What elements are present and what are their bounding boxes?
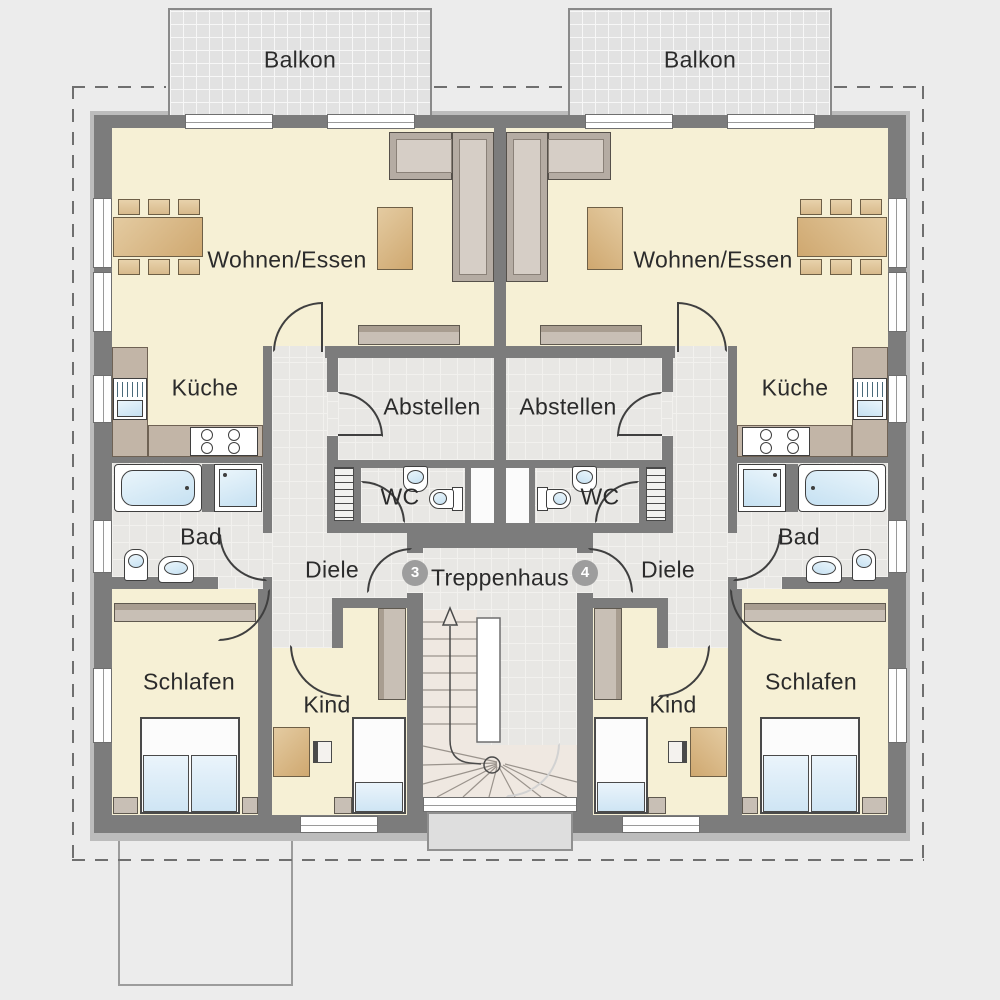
- room-label-bedroom-right: Schlafen: [765, 669, 857, 696]
- room-label-kitchen-left: Küche: [172, 375, 239, 402]
- room-label-child-right: Kind: [649, 692, 696, 719]
- room-label-balcony-right: Balkon: [664, 47, 736, 74]
- room-label-kitchen-right: Küche: [762, 375, 829, 402]
- room-label-hall-left: Diele: [305, 557, 359, 584]
- room-label-living-left: Wohnen/Essen: [207, 247, 366, 274]
- room-label-storage-right: Abstellen: [519, 394, 616, 421]
- room-label-hall-right: Diele: [641, 557, 695, 584]
- labels-layer: Balkon Balkon Wohnen/Essen Wohnen/Essen …: [0, 0, 1000, 1000]
- room-label-bath-left: Bad: [180, 524, 222, 551]
- room-label-living-right: Wohnen/Essen: [633, 247, 792, 274]
- room-label-bedroom-left: Schlafen: [143, 669, 235, 696]
- floor-plan: Balkon Balkon Wohnen/Essen Wohnen/Essen …: [0, 0, 1000, 1000]
- room-label-stairwell: Treppenhaus: [431, 565, 569, 592]
- room-label-wc-right: WC: [581, 484, 620, 511]
- unit-badge-right: 4: [572, 560, 598, 586]
- room-label-wc-left: WC: [381, 484, 420, 511]
- room-label-child-left: Kind: [303, 692, 350, 719]
- room-label-bath-right: Bad: [778, 524, 820, 551]
- room-label-balcony-left: Balkon: [264, 47, 336, 74]
- room-label-storage-left: Abstellen: [383, 394, 480, 421]
- unit-badge-left: 3: [402, 560, 428, 586]
